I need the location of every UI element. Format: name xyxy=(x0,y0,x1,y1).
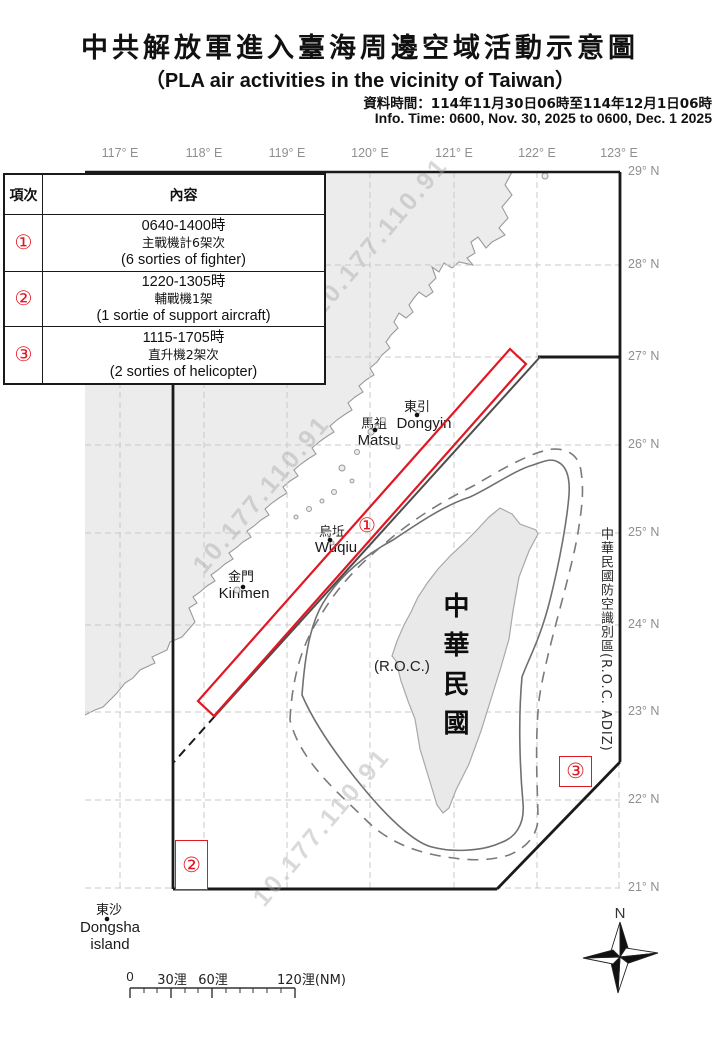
activity-desc-zh: 直升機2架次 xyxy=(148,347,218,363)
activity-time: 1115-1705時 xyxy=(143,329,225,347)
map-marker-3: ③ xyxy=(559,756,592,787)
map-marker-2: ② xyxy=(175,840,208,890)
map-marker-1: ① xyxy=(353,513,381,538)
compass-rose-icon xyxy=(583,922,658,993)
table-row: 0640-1400時 主戰機計6架次 (6 sorties of fighter… xyxy=(43,215,324,272)
activity-time: 0640-1400時 xyxy=(142,217,226,235)
map-marker-3-label: ③ xyxy=(566,759,585,784)
table-row-marker: ③ xyxy=(5,327,43,383)
label-adiz-vertical: 中華民國防空識別區(R.O.C. ADIZ) xyxy=(596,527,615,752)
activity-desc-en: (1 sortie of support aircraft) xyxy=(96,307,270,325)
table-row: 1115-1705時 直升機2架次 (2 sorties of helicopt… xyxy=(43,327,324,383)
table-header-index: 項次 xyxy=(5,175,43,215)
pla-activity-map-page: 10.177.110.91 10.177.110.91 10.177.110.9… xyxy=(0,0,720,1040)
map-marker-2-label: ② xyxy=(182,853,201,878)
activity-table: 項次 內容 ① 0640-1400時 主戰機計6架次 (6 sorties of… xyxy=(3,173,326,385)
label-roc-vertical: 中華民國 xyxy=(436,592,473,748)
activity-desc-zh: 輔戰機1架 xyxy=(155,291,213,307)
activity-time: 1220-1305時 xyxy=(142,273,226,291)
activity-desc-en: (2 sorties of helicopter) xyxy=(110,363,257,381)
table-header-content: 內容 xyxy=(43,175,324,215)
activity-desc-zh: 主戰機計6架次 xyxy=(142,235,225,251)
table-row: 1220-1305時 輔戰機1架 (1 sortie of support ai… xyxy=(43,272,324,327)
table-row-marker: ① xyxy=(5,215,43,272)
activity-desc-en: (6 sorties of fighter) xyxy=(121,251,246,269)
label-roc-paren: (R.O.C.) xyxy=(374,658,430,675)
table-row-marker: ② xyxy=(5,272,43,327)
scalebar-ruler xyxy=(130,988,295,998)
